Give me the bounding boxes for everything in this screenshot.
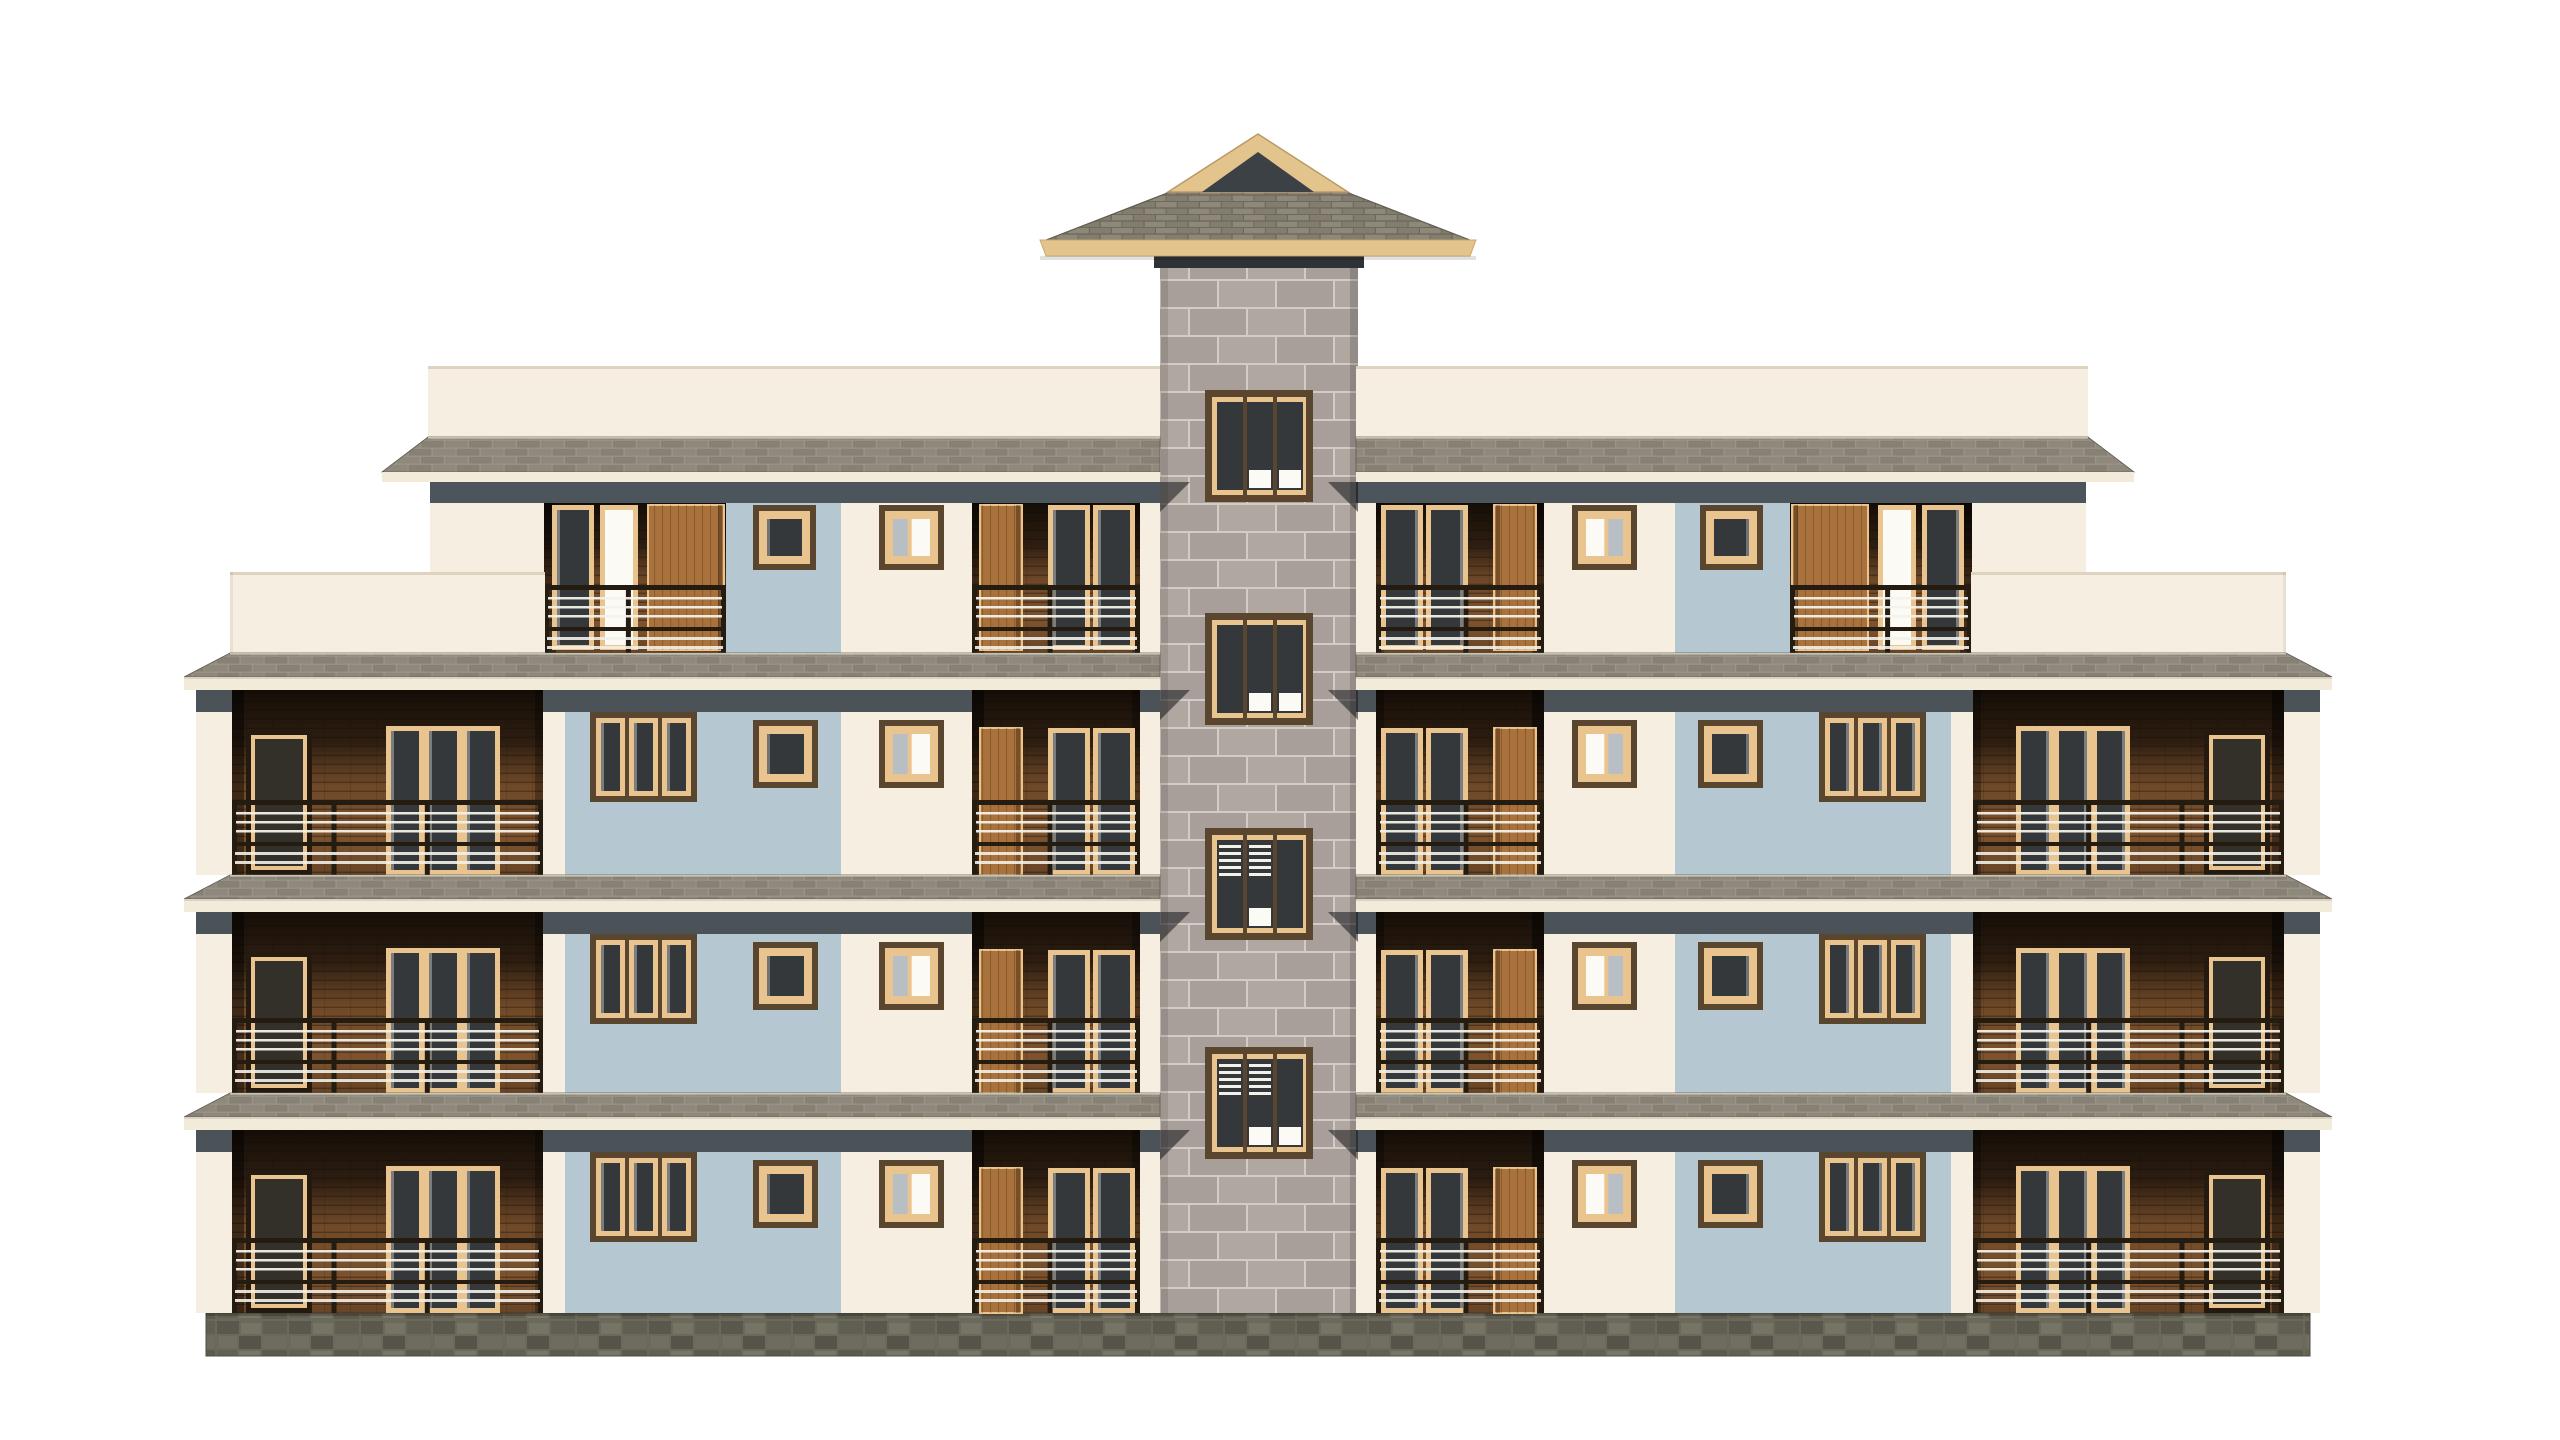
inner-block-parapet [428,366,1160,437]
tower-window-4 [1205,1047,1313,1159]
small-window-dark [753,942,818,1010]
floor-slab-2 [184,875,1160,912]
floor-slab-3 [184,1093,1160,1130]
three-pane-window [590,712,697,802]
wing-parapet [230,572,545,653]
first-floor-left [196,1130,1160,1313]
three-pane-window [590,1152,697,1242]
tower-window-1 [1205,390,1313,502]
tower-window-3 [1205,828,1313,940]
small-window-light [879,505,944,570]
tower-window-2 [1205,613,1313,725]
small-window-light [879,942,944,1010]
small-window-light [879,720,944,788]
tower-roof-fascia [1040,240,1476,256]
building-elevation-svg [0,0,2560,1440]
stone-plinth-base [206,1313,2310,1356]
small-window-light [879,1160,944,1228]
third-floor-left [196,690,1160,875]
architectural-render-canvas [0,0,2560,1440]
floor-slab-1 [184,653,1160,690]
inner-block-roof-slab [382,437,1160,482]
three-pane-window [590,934,697,1024]
small-window-dark [753,505,816,570]
second-floor-left [196,912,1160,1093]
small-window-dark [753,720,818,788]
small-window-dark [753,1160,818,1228]
